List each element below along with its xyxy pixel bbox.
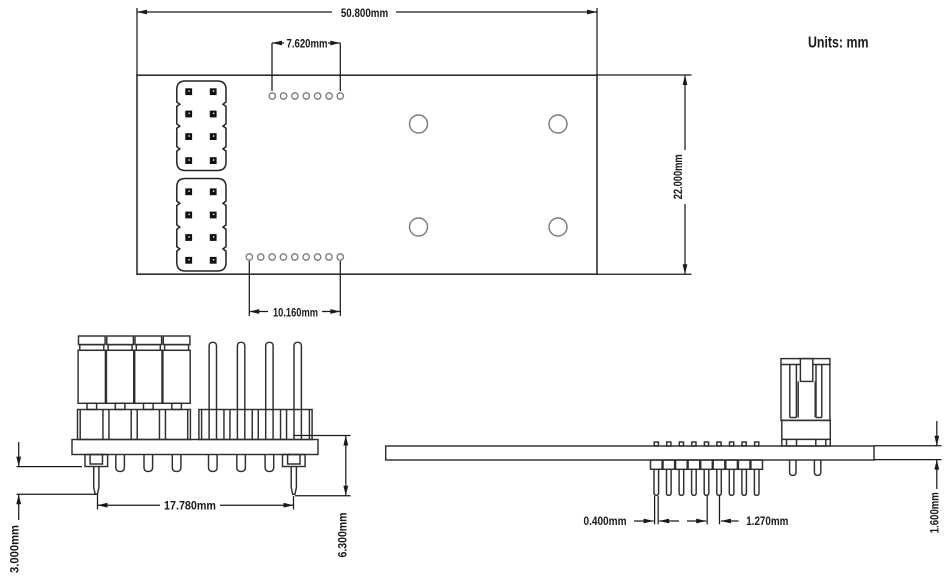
svg-text:1.600mm: 1.600mm: [928, 492, 942, 533]
svg-text:22.000mm: 22.000mm: [671, 154, 685, 199]
svg-text:0.400mm: 0.400mm: [584, 514, 627, 528]
svg-text:6.300mm: 6.300mm: [336, 512, 350, 557]
svg-text:50.800mm: 50.800mm: [341, 6, 388, 20]
svg-text:1.270mm: 1.270mm: [746, 514, 788, 528]
svg-text:Units: mm: Units: mm: [808, 34, 869, 51]
svg-text:10.160mm: 10.160mm: [273, 305, 318, 319]
svg-text:3.000mm: 3.000mm: [7, 525, 21, 573]
svg-text:17.780mm: 17.780mm: [164, 498, 216, 512]
svg-text:7.620mm: 7.620mm: [287, 36, 328, 50]
